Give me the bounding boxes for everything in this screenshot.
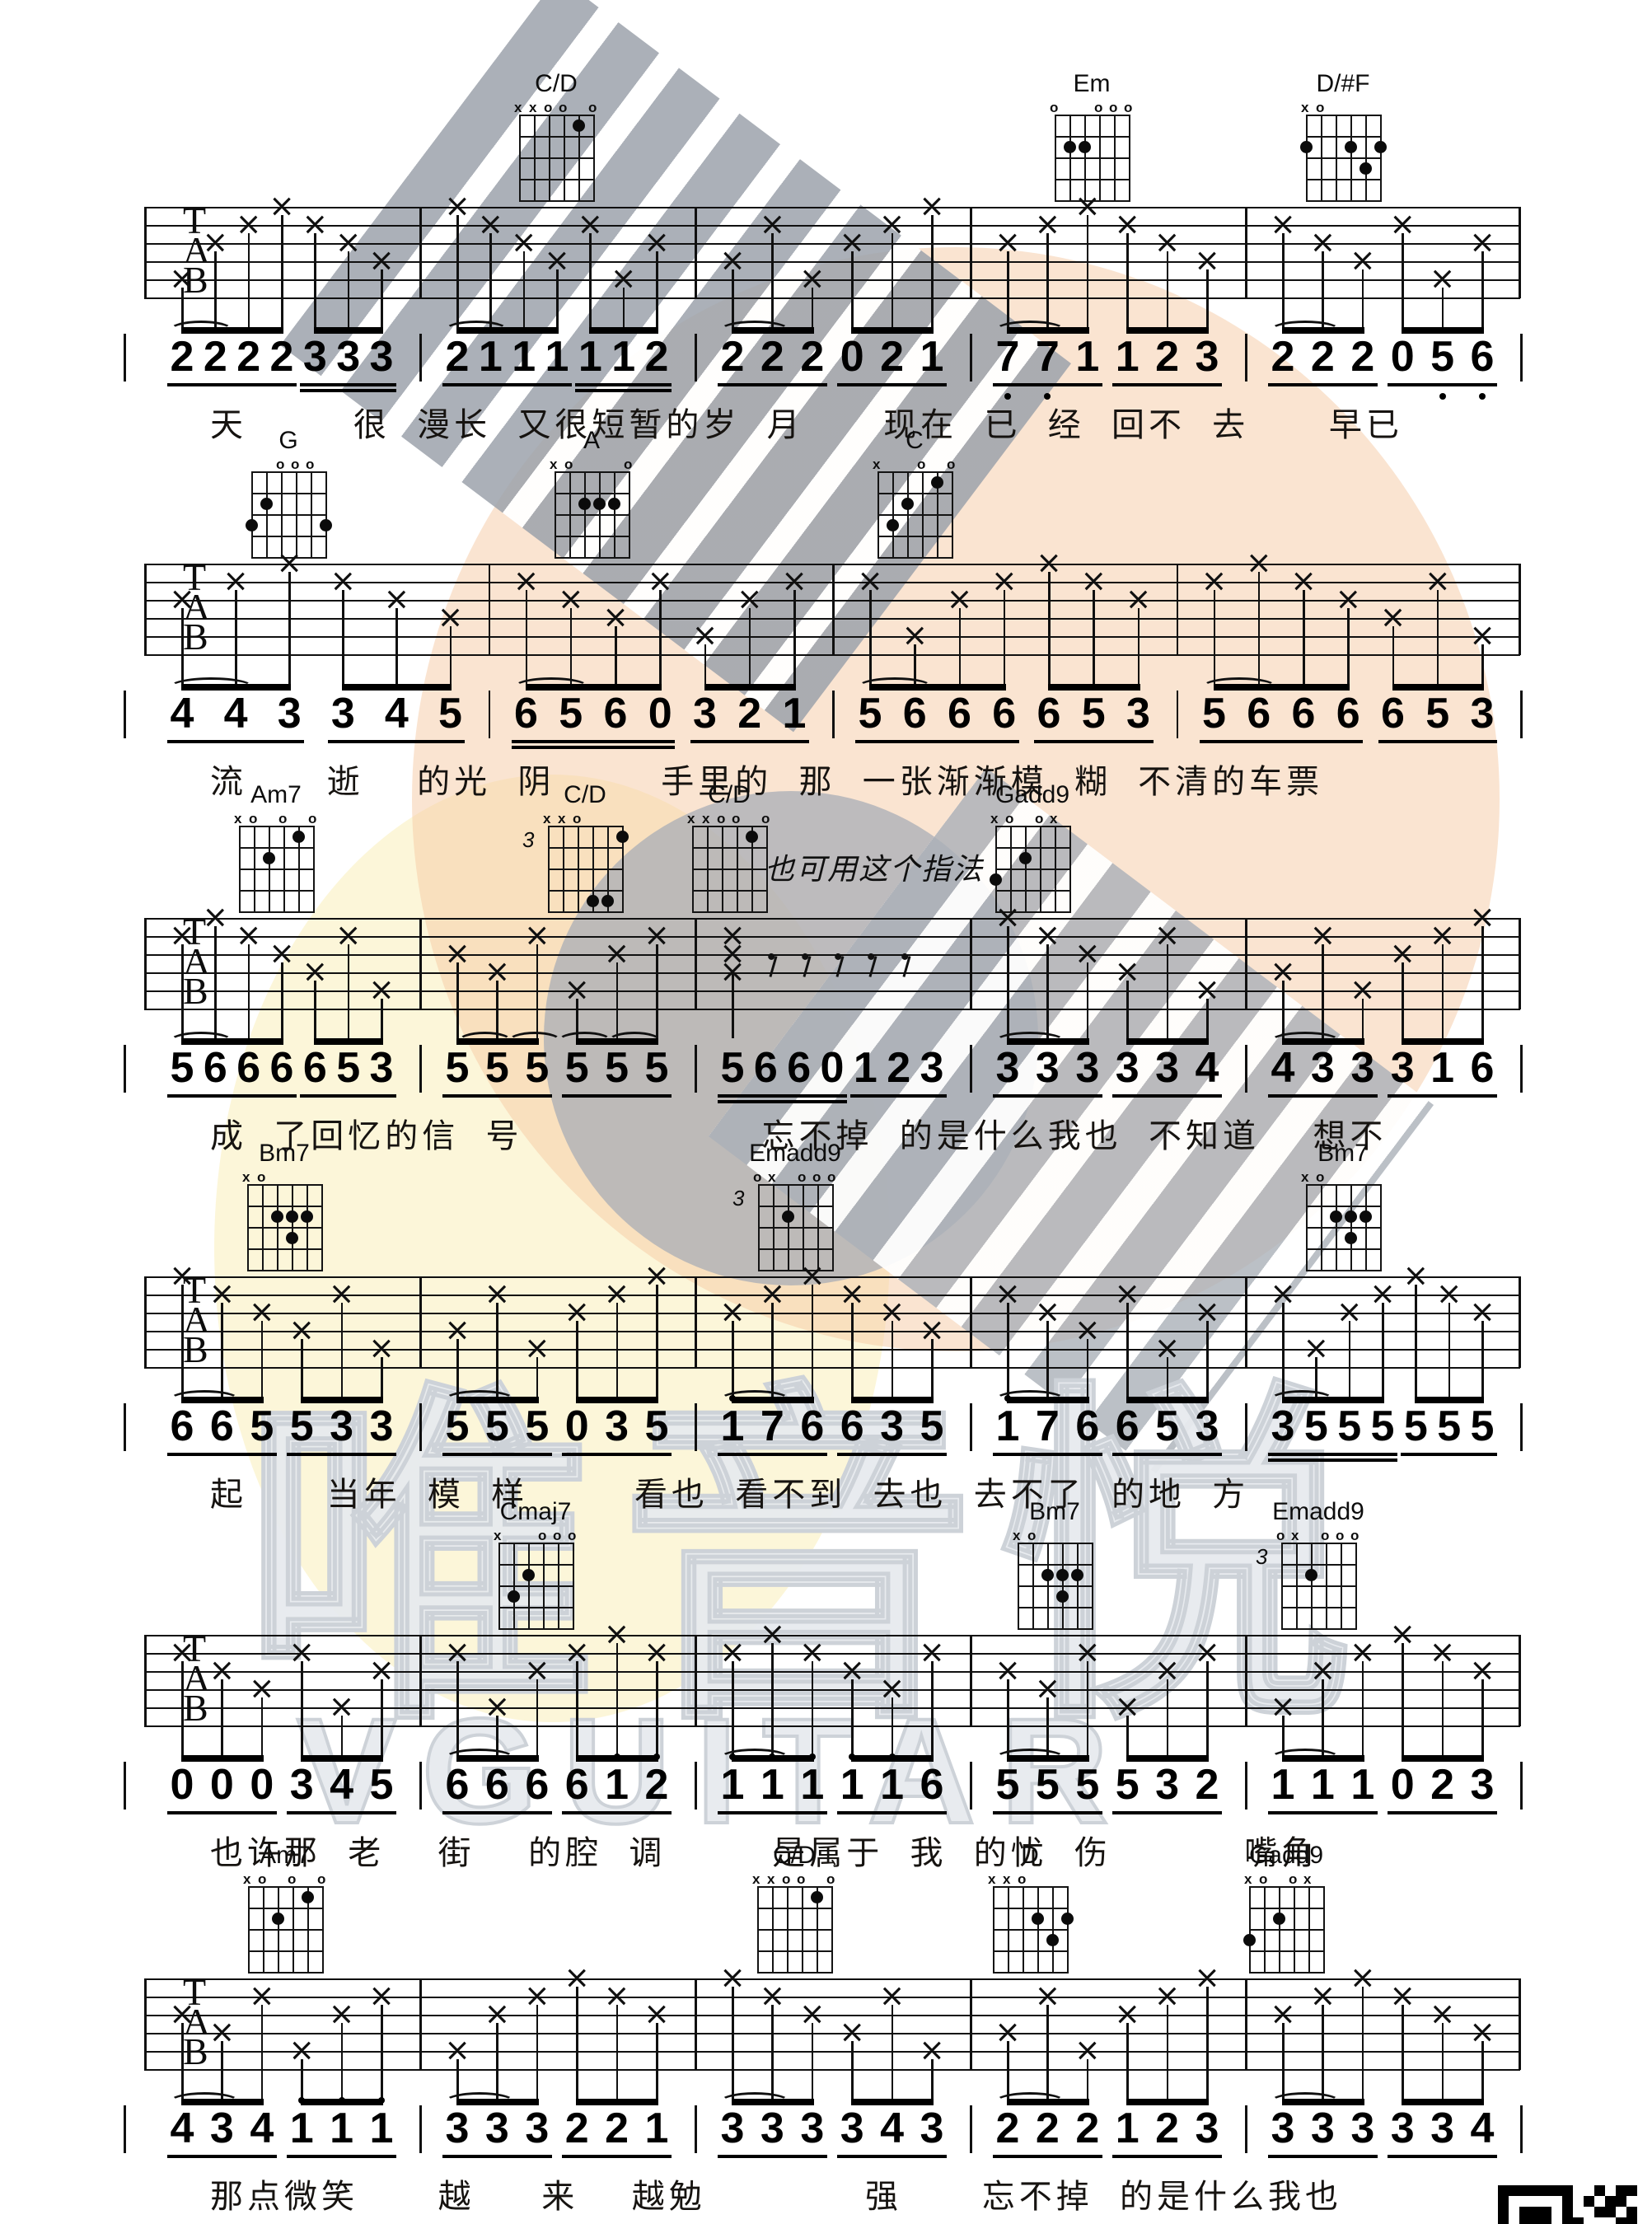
measure-barline — [970, 2105, 972, 2153]
jianpu-number: 3 — [1271, 2107, 1295, 2150]
qr-module — [1551, 2185, 1562, 2196]
open-string-marker: o — [258, 1871, 266, 1888]
chord-diagram: Am7xooo — [227, 1842, 343, 1982]
beat-underline — [1388, 2155, 1497, 2158]
qr-module — [1541, 2207, 1551, 2217]
grid-fret-line — [1249, 1950, 1325, 1952]
finger-dot — [811, 1891, 823, 1903]
muted-string-marker: x — [1303, 1871, 1311, 1888]
qr-code — [1498, 2185, 1638, 2224]
jianpu-number: 4 — [880, 2107, 904, 2150]
qr-module — [1498, 2207, 1509, 2217]
grid-fret-line — [1249, 1972, 1325, 1974]
staff-line — [144, 2069, 1520, 2071]
alt-fingering-annotation: 也可用这个指法 — [765, 845, 984, 888]
jianpu-number: 2 — [1075, 2107, 1099, 2150]
chord-diagram: Gadd9xoox — [1228, 1842, 1344, 1982]
qr-module — [1541, 2217, 1551, 2224]
open-string-marker: o — [288, 1871, 296, 1888]
open-string-marker: o — [1289, 1871, 1297, 1888]
chord-diagram: Dxxo — [972, 1842, 1088, 1982]
staff-barline — [144, 1978, 147, 2070]
grid-fret-line — [757, 1929, 833, 1931]
jianpu-number: 1 — [290, 2107, 314, 2150]
chord-grid — [993, 1886, 1069, 1972]
note-stem — [536, 2005, 539, 2099]
qr-module — [1605, 2196, 1616, 2207]
beat-underline — [1112, 2155, 1222, 2158]
finger-dot — [1273, 1913, 1285, 1925]
jianpu-number: 3 — [446, 2107, 470, 2150]
qr-module — [1584, 2196, 1594, 2207]
qr-module — [1562, 2185, 1573, 2196]
staff-barline — [970, 1978, 972, 2070]
jianpu-left-barline — [124, 2105, 126, 2153]
qr-module — [1616, 2196, 1626, 2207]
qr-module — [1519, 2207, 1530, 2217]
jianpu-number: 4 — [250, 2107, 274, 2150]
lyrics-line: 那点微笑 越 来 越勉 强 忘不掉 的是什么我也 — [210, 2170, 1342, 2217]
grid-fret-line — [1249, 1929, 1325, 1931]
open-string-marker: o — [1259, 1871, 1267, 1888]
beat-underline — [718, 2155, 827, 2158]
guitar-tab-sheet: 唯音悦 VGUITAR C/DxxoooEmooooD/#FxoTAB×××××… — [0, 0, 1652, 2224]
chord-name: Gadd9 — [1228, 1842, 1344, 1870]
qr-module — [1616, 2185, 1626, 2196]
note-stem — [1087, 2059, 1089, 2099]
open-string-marker: o — [317, 1871, 325, 1888]
octave-dot-high — [339, 2097, 345, 2104]
notation-systems: C/DxxoooEmooooD/#FxoTAB×××××××2222333×××… — [0, 0, 1652, 2224]
qr-module — [1562, 2207, 1573, 2217]
chord-diagram: C/Dxxooo — [737, 1842, 852, 1982]
finger-dot — [302, 1891, 314, 1903]
note-stem — [1282, 2023, 1285, 2099]
chord-name: C/D — [737, 1842, 852, 1870]
note-stem — [1402, 2005, 1404, 2099]
open-string-marker: o — [797, 1871, 805, 1888]
qr-module — [1594, 2207, 1605, 2217]
grid-fret-line — [248, 1972, 324, 1974]
grid-fret-line — [757, 1908, 833, 1909]
note-stem — [732, 1987, 734, 2099]
jianpu-number: 3 — [1391, 2107, 1415, 2150]
note-stem — [1481, 2041, 1484, 2099]
qr-module — [1626, 2217, 1637, 2224]
note-stem — [616, 2005, 619, 2099]
note-stem — [1046, 2005, 1049, 2099]
note-stem — [456, 2059, 459, 2099]
jianpu-number: 2 — [996, 2107, 1020, 2150]
note-stem — [496, 2023, 498, 2099]
chord-grid — [1249, 1886, 1325, 1972]
jianpu-number: 3 — [760, 2107, 784, 2150]
finger-dot — [1032, 1913, 1044, 1925]
jianpu-number: 1 — [1116, 2107, 1140, 2150]
grid-fret-line — [993, 1950, 1069, 1952]
jianpu-number: 3 — [721, 2107, 745, 2150]
grid-fret-line — [248, 1886, 324, 1888]
staff-barline — [419, 1978, 422, 2070]
grid-fret-line — [757, 1972, 833, 1974]
note-stem — [1167, 2005, 1169, 2099]
jianpu-number: 3 — [1430, 2107, 1454, 2150]
qr-module — [1519, 2217, 1530, 2224]
note-stem — [771, 2005, 774, 2099]
measure-barline — [695, 2105, 697, 2153]
note-stem — [1322, 2005, 1324, 2099]
qr-module — [1594, 2185, 1605, 2196]
jianpu-number: 3 — [840, 2107, 864, 2150]
jianpu-number: 4 — [171, 2107, 194, 2150]
qr-module — [1562, 2217, 1573, 2224]
grid-fret-line — [248, 1950, 324, 1952]
tab-clef-letter: B — [183, 2033, 208, 2071]
note-stem — [851, 2041, 854, 2099]
muted-string-marker: x — [243, 1871, 250, 1888]
note-stem — [341, 2023, 344, 2099]
open-string-marker: o — [782, 1871, 790, 1888]
jianpu-number: 3 — [920, 2107, 944, 2150]
qr-module — [1530, 2185, 1541, 2196]
jianpu-number: 3 — [210, 2107, 234, 2150]
staff-line — [144, 2051, 1520, 2053]
note-stem — [1362, 1987, 1364, 2099]
finger-dot — [1243, 1934, 1256, 1946]
qr-module — [1605, 2207, 1616, 2217]
staff-line — [144, 2033, 1520, 2034]
finger-dot — [272, 1913, 284, 1925]
jianpu-number: 4 — [1471, 2107, 1495, 2150]
beat-underline — [562, 2155, 672, 2158]
qr-module — [1498, 2196, 1509, 2207]
note-stem — [1126, 2023, 1129, 2099]
grid-fret-line — [757, 1886, 833, 1888]
jianpu-number: 1 — [370, 2107, 394, 2150]
beat-underline — [442, 2155, 552, 2158]
beat-underline — [993, 2155, 1102, 2158]
qr-module — [1562, 2196, 1573, 2207]
chord-name: D — [972, 1842, 1088, 1870]
beat-underline — [837, 2155, 947, 2158]
note-stem — [576, 1987, 578, 2099]
jianpu-number: 3 — [525, 2107, 549, 2150]
jianpu-number: 2 — [1155, 2107, 1179, 2150]
grid-fret-line — [1249, 1886, 1325, 1888]
measure-barline — [1245, 2105, 1247, 2153]
finger-dot — [1061, 1913, 1074, 1925]
note-stem — [221, 2041, 223, 2099]
octave-dot-high — [298, 2097, 305, 2104]
jianpu-number: 3 — [1311, 2107, 1335, 2150]
jianpu-number: 3 — [1196, 2107, 1219, 2150]
qr-module — [1530, 2217, 1541, 2224]
note-stem — [181, 2023, 184, 2099]
note-stem — [261, 2005, 264, 2099]
jianpu-number: 3 — [1350, 2107, 1374, 2150]
staff-barline — [695, 1978, 697, 2070]
finger-dot — [1046, 1934, 1059, 1946]
grid-fret-line — [248, 1908, 324, 1909]
qr-module — [1530, 2207, 1541, 2217]
system-6: Am7xoooC/DxxoooDxxoGadd9xooxTAB××××××434… — [0, 0, 1652, 2224]
note-stem — [1007, 2041, 1009, 2099]
qr-module — [1573, 2217, 1584, 2224]
jianpu-number: 2 — [605, 2107, 629, 2150]
qr-module — [1498, 2217, 1509, 2224]
jianpu-number: 1 — [330, 2107, 353, 2150]
qr-module — [1626, 2207, 1637, 2217]
grid-fret-line — [993, 1929, 1069, 1931]
qr-module — [1519, 2185, 1530, 2196]
note-stem — [1442, 2023, 1444, 2099]
staff-barline — [1245, 1978, 1247, 2070]
note-stem — [301, 2059, 303, 2099]
grid-fret-line — [1249, 1908, 1325, 1909]
measure-barline — [419, 2105, 422, 2153]
jianpu-number: 2 — [1036, 2107, 1060, 2150]
jianpu-number: 1 — [645, 2107, 669, 2150]
grid-fret-line — [757, 1950, 833, 1952]
qr-module — [1498, 2185, 1509, 2196]
open-string-marker: o — [1018, 1871, 1026, 1888]
beat-underline — [1268, 2155, 1378, 2158]
note-stem — [812, 2023, 814, 2099]
note-stem — [1206, 1987, 1209, 2099]
jianpu-number: 3 — [800, 2107, 824, 2150]
open-string-marker: o — [826, 1871, 835, 1888]
staff-barline — [1519, 1978, 1521, 2070]
octave-dot-high — [378, 2097, 385, 2104]
jianpu-number: 3 — [485, 2107, 509, 2150]
qr-module — [1509, 2185, 1519, 2196]
beat-underline — [287, 2155, 396, 2158]
qr-module — [1616, 2217, 1626, 2224]
note-stem — [892, 2005, 894, 2099]
qr-module — [1541, 2185, 1551, 2196]
measure-barline — [1520, 2105, 1523, 2153]
jianpu-number: 2 — [565, 2107, 589, 2150]
grid-fret-line — [993, 1972, 1069, 1974]
chord-name: Am7 — [227, 1842, 343, 1870]
muted-string-marker: x — [752, 1871, 760, 1888]
grid-fret-line — [993, 1886, 1069, 1888]
grid-fret-line — [248, 1929, 324, 1931]
beat-underline — [167, 2155, 277, 2158]
note-stem — [656, 2023, 658, 2099]
note-stem — [931, 2059, 934, 2099]
grid-fret-line — [993, 1908, 1069, 1909]
note-stem — [381, 2005, 383, 2099]
chord-grid — [248, 1886, 324, 1972]
chord-grid — [757, 1886, 833, 1972]
muted-string-marker: x — [767, 1871, 775, 1888]
muted-string-marker: x — [1003, 1871, 1010, 1888]
muted-string-marker: x — [1244, 1871, 1252, 1888]
muted-string-marker: x — [988, 1871, 995, 1888]
qr-module — [1626, 2185, 1637, 2196]
